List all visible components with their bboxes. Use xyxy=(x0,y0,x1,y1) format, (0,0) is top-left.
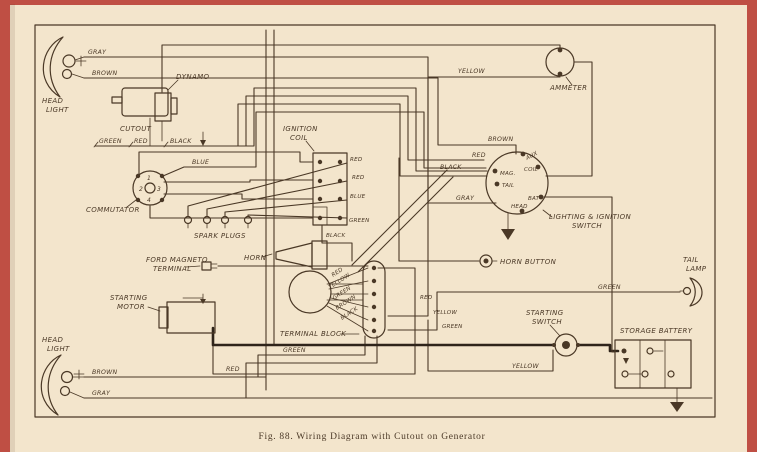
page-margin-bottom xyxy=(0,452,757,463)
block-terminal xyxy=(372,329,376,333)
coil-terminal xyxy=(318,197,322,201)
coil-red2-label: RED xyxy=(352,175,365,181)
starting-switch-post xyxy=(576,343,580,347)
starting-motor-label-2: MOTOR xyxy=(117,303,145,311)
horn-button-label: HORN BUTTON xyxy=(500,258,557,266)
switch-gray-label: GRAY xyxy=(456,195,475,202)
horn-button-center xyxy=(484,259,489,264)
switch-tail-label: TAIL xyxy=(502,183,514,189)
commutator-contact xyxy=(160,198,164,202)
commutator-label: COMMUTATOR xyxy=(86,206,140,214)
ignition-coil-label-1: IGNITION xyxy=(283,125,318,133)
scanned-book-page: 1 2 3 4 xyxy=(0,0,757,463)
ammeter-label: AMMETER xyxy=(549,84,587,92)
terminal-block-label: TERMINAL BLOCK xyxy=(280,330,347,338)
lighting-switch-label-2: SWITCH xyxy=(572,222,602,230)
green-bottom-label: GREEN xyxy=(283,347,306,354)
starting-switch-post xyxy=(552,343,556,347)
block-terminal xyxy=(372,266,376,270)
starting-switch-button xyxy=(562,341,570,349)
cutout-green-label: GREEN xyxy=(99,138,122,145)
red-bottom-label: RED xyxy=(226,366,240,373)
commutator-contact xyxy=(136,198,140,202)
block-right-red-label: RED xyxy=(420,295,433,301)
coil-terminal xyxy=(338,160,342,164)
coil-blue-label: BLUE xyxy=(350,194,366,200)
brown-bottom-label: BROWN xyxy=(92,369,118,376)
starting-yellow-label: YELLOW xyxy=(512,363,540,370)
cutout-label: CUTOUT xyxy=(120,125,152,133)
switch-red-label: RED xyxy=(472,152,486,159)
tail-lamp-label-1: TAIL xyxy=(683,256,699,264)
coil-terminal xyxy=(318,160,322,164)
coil-red1-label: RED xyxy=(350,157,363,163)
yellow-top-label: YELLOW xyxy=(458,68,486,75)
lighting-switch-label-1: LIGHTING & IGNITION xyxy=(549,213,632,221)
head-light-bottom-label-2: LIGHT xyxy=(47,345,70,353)
commutator-contact xyxy=(160,174,164,178)
tail-green-label: GREEN xyxy=(598,284,621,291)
page-edge-top xyxy=(0,0,757,5)
switch-terminal-tail xyxy=(495,182,500,187)
brown-top-label: BROWN xyxy=(92,70,118,77)
block-terminal xyxy=(372,292,376,296)
commutator-number-3: 3 xyxy=(157,186,161,193)
ford-magneto-label-2: TERMINAL xyxy=(153,265,191,273)
horn-label: HORN xyxy=(244,254,267,262)
block-terminal xyxy=(372,305,376,309)
block-right-yellow-label: YELLOW xyxy=(433,310,457,316)
switch-bat-label: BAT xyxy=(528,196,540,202)
gray-top-label: GRAY xyxy=(88,49,107,56)
cutout-red-label: RED xyxy=(134,138,148,145)
ignition-coil-label-2: COIL xyxy=(290,134,308,142)
starting-switch-label-1: STARTING xyxy=(526,309,564,317)
ammeter-terminal xyxy=(558,48,563,53)
coil-terminal xyxy=(338,179,342,183)
ford-magneto-label-1: FORD MAGNETO xyxy=(146,256,208,264)
commutator-number-4: 4 xyxy=(147,197,151,204)
switch-coil-label: COIL xyxy=(524,167,538,173)
battery-terminal xyxy=(622,349,627,354)
coil-terminal xyxy=(338,216,342,220)
coil-terminal xyxy=(318,179,322,183)
switch-terminal-mag xyxy=(493,169,498,174)
storage-battery-label: STORAGE BATTERY xyxy=(620,327,693,335)
wiring-diagram: 1 2 3 4 xyxy=(0,0,757,463)
switch-terminal-bat xyxy=(539,195,544,200)
head-light-top-label-2: LIGHT xyxy=(46,106,69,114)
coil-green-label: GREEN xyxy=(349,218,370,224)
head-light-bottom-label-1: HEAD xyxy=(42,336,64,344)
switch-black-label: BLACK xyxy=(440,164,462,171)
block-terminal xyxy=(372,318,376,322)
switch-brown-label: BROWN xyxy=(488,136,514,143)
cutout-black-label: BLACK xyxy=(170,138,192,145)
page-edge-right xyxy=(747,4,757,452)
ammeter-terminal xyxy=(558,72,563,77)
commutator-number-1: 1 xyxy=(147,175,151,182)
blue-label: BLUE xyxy=(192,159,209,166)
page-edge-left xyxy=(0,4,10,452)
page-crease xyxy=(10,4,15,452)
figure-caption: Fig. 88. Wiring Diagram with Cutout on G… xyxy=(259,432,486,442)
spark-plugs-label: SPARK PLUGS xyxy=(194,232,246,240)
dynamo-label: DYNAMO xyxy=(176,73,209,81)
coil-black-label: BLACK xyxy=(326,233,346,239)
commutator-number-2: 2 xyxy=(139,186,143,193)
switch-head-label: HEAD xyxy=(511,204,528,210)
head-light-top-label-1: HEAD xyxy=(42,97,64,105)
block-right-green-label: GREEN xyxy=(442,324,463,330)
coil-terminal xyxy=(338,197,342,201)
commutator-contact xyxy=(136,174,140,178)
block-terminal xyxy=(372,279,376,283)
coil-terminal xyxy=(318,216,322,220)
switch-mag-label: MAG. xyxy=(500,171,516,177)
starting-switch-label-2: SWITCH xyxy=(532,318,562,326)
starting-motor-label-1: STARTING xyxy=(110,294,148,302)
tail-lamp-label-2: LAMP xyxy=(686,265,707,273)
gray-bottom-label: GRAY xyxy=(92,390,111,397)
